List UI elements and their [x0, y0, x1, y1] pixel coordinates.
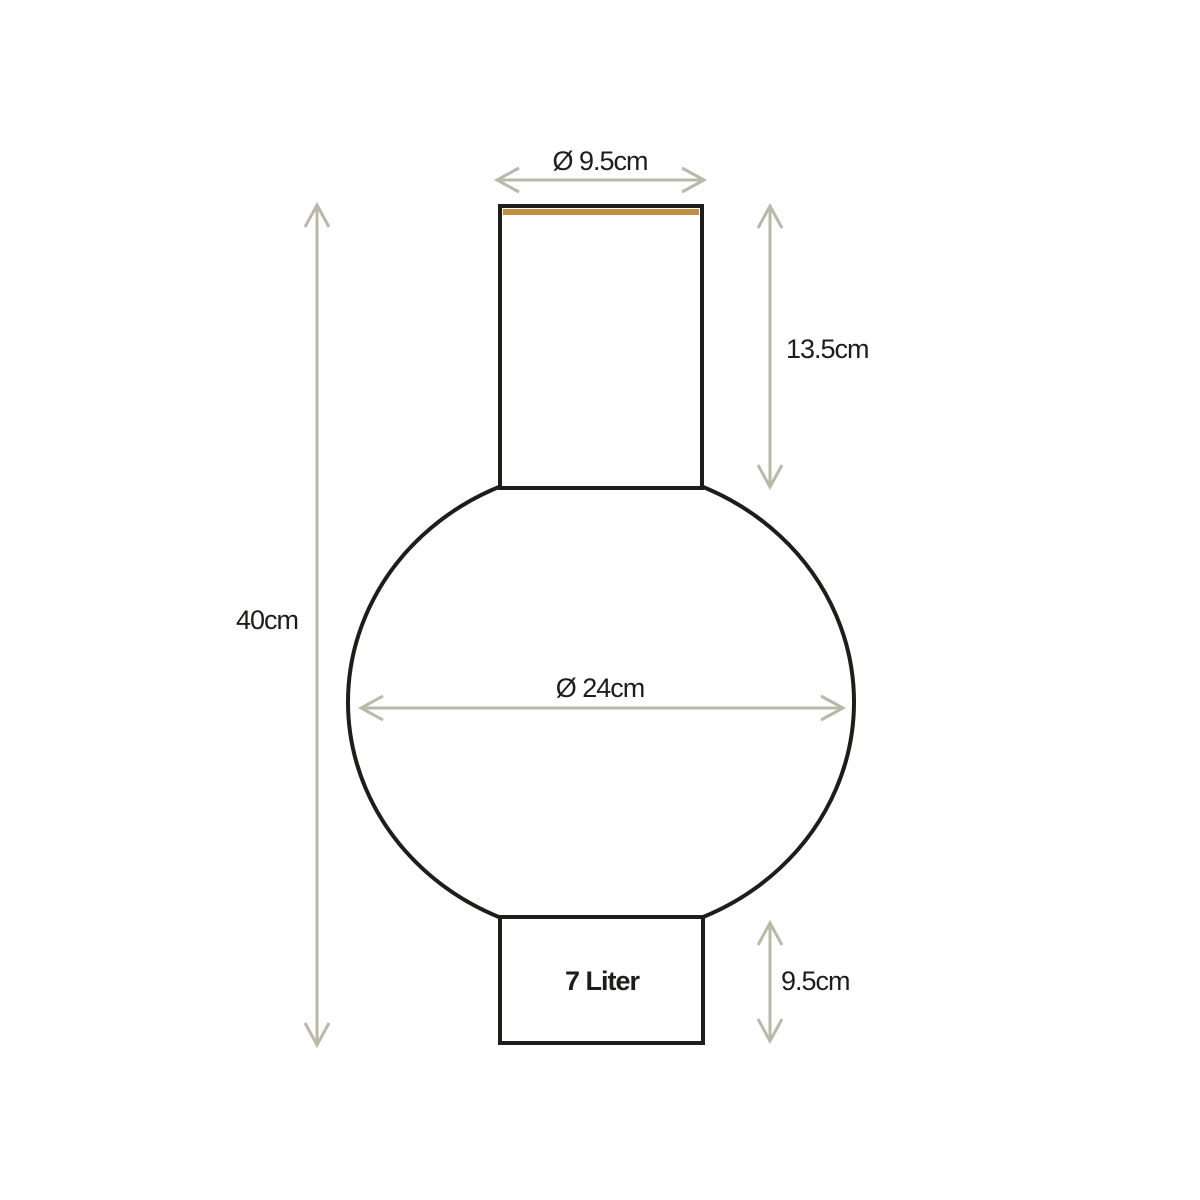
dimension-base-height: 9.5cm — [758, 923, 850, 1041]
label-total-height: 40cm — [236, 605, 298, 635]
vase-outline — [348, 206, 854, 1043]
vase-dimension-diagram: Ø 9.5cm 13.5cm 40cm Ø 24cm 7 Liter — [0, 0, 1200, 1200]
dimension-neck-height: 13.5cm — [758, 206, 869, 487]
dimension-top-diameter: Ø 9.5cm — [497, 146, 704, 192]
vase-neck — [500, 206, 702, 488]
label-body-diameter: Ø 24cm — [556, 673, 645, 703]
rim-accent-line — [503, 209, 699, 215]
diagram-canvas: Ø 9.5cm 13.5cm 40cm Ø 24cm 7 Liter — [0, 0, 1200, 1200]
label-neck-height: 13.5cm — [786, 334, 869, 364]
label-base-height: 9.5cm — [781, 966, 850, 996]
label-capacity: 7 Liter — [565, 966, 641, 996]
dimension-total-height: 40cm — [236, 205, 329, 1045]
label-top-diameter: Ø 9.5cm — [552, 146, 647, 176]
